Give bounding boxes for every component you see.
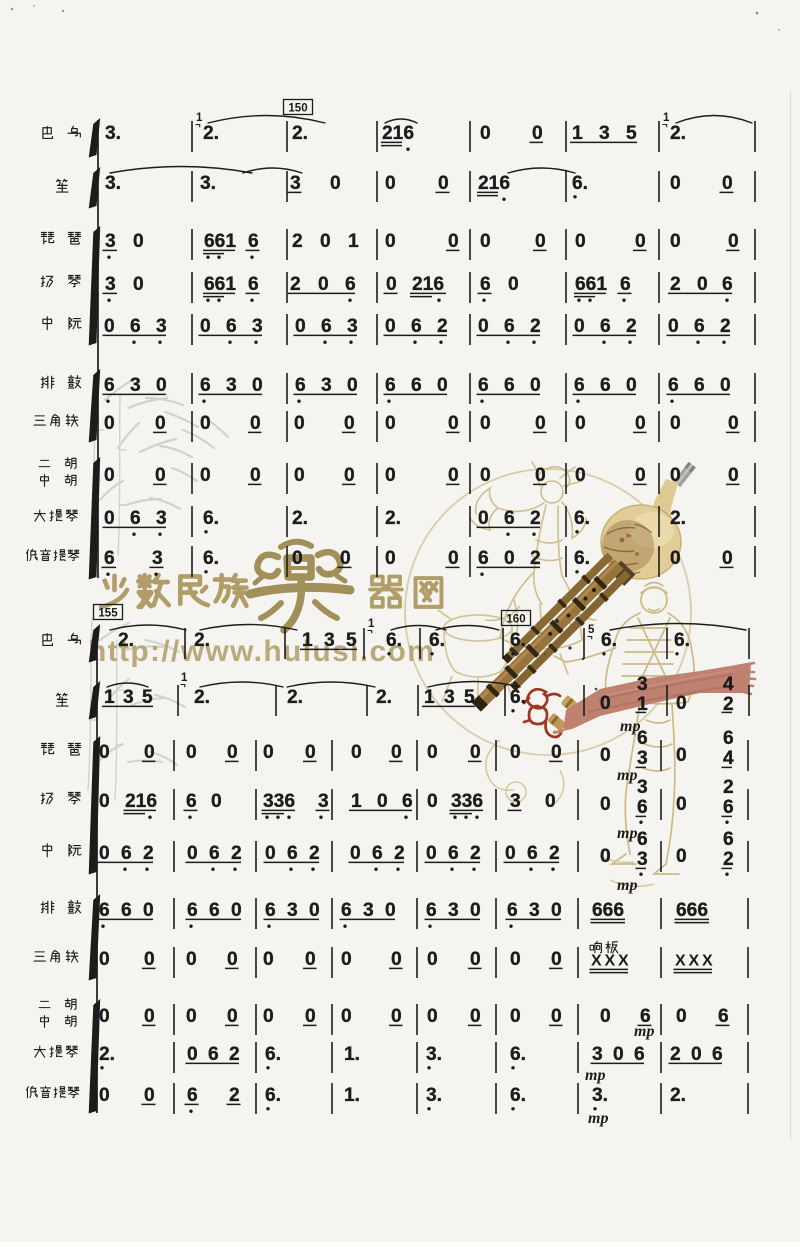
- svg-text:5: 5: [626, 123, 637, 144]
- svg-text:6.: 6.: [572, 173, 588, 194]
- svg-text:6.: 6.: [574, 548, 590, 569]
- svg-text:0: 0: [600, 693, 611, 714]
- svg-text:0: 0: [510, 949, 521, 970]
- svg-text:1.: 1.: [344, 1044, 360, 1065]
- svg-text:0: 0: [104, 316, 115, 337]
- svg-text:0: 0: [155, 465, 166, 486]
- svg-text:6.: 6.: [510, 687, 526, 708]
- svg-text:0: 0: [427, 742, 438, 763]
- svg-text:0: 0: [156, 375, 167, 396]
- svg-text:0: 0: [263, 742, 274, 763]
- svg-text:3: 3: [290, 173, 301, 194]
- svg-text:3: 3: [529, 900, 540, 921]
- svg-text:0: 0: [600, 846, 611, 867]
- svg-text:0: 0: [231, 900, 242, 921]
- svg-text:0: 0: [676, 794, 687, 815]
- svg-text:0: 0: [385, 231, 396, 252]
- svg-text:0: 0: [305, 1006, 316, 1027]
- svg-text:0: 0: [470, 949, 481, 970]
- svg-text:6: 6: [372, 843, 383, 864]
- svg-text:0: 0: [575, 413, 586, 434]
- svg-text:6.: 6.: [429, 630, 445, 651]
- svg-text:0: 0: [635, 413, 646, 434]
- svg-text:0: 0: [480, 231, 491, 252]
- svg-text:6: 6: [527, 843, 538, 864]
- svg-text:0: 0: [200, 413, 211, 434]
- svg-text:3: 3: [156, 508, 167, 529]
- svg-text:6: 6: [504, 508, 515, 529]
- svg-text:2: 2: [394, 843, 405, 864]
- svg-text:2: 2: [143, 843, 154, 864]
- svg-text:0: 0: [263, 1006, 274, 1027]
- svg-text:2.: 2.: [376, 687, 392, 708]
- svg-text:2: 2: [723, 777, 734, 798]
- svg-text:0: 0: [505, 843, 516, 864]
- svg-text:0: 0: [437, 375, 448, 396]
- svg-text:0: 0: [676, 846, 687, 867]
- svg-text:6: 6: [722, 274, 733, 295]
- svg-text:6: 6: [694, 375, 705, 396]
- svg-text:0: 0: [691, 1044, 702, 1065]
- svg-text:0: 0: [545, 791, 556, 812]
- svg-text:X X X: X X X: [591, 953, 629, 970]
- svg-text:2: 2: [437, 316, 448, 337]
- svg-text:0: 0: [600, 794, 611, 815]
- svg-text:6: 6: [620, 274, 631, 295]
- svg-text:0: 0: [448, 465, 459, 486]
- svg-text:0: 0: [670, 231, 681, 252]
- svg-text:0: 0: [722, 173, 733, 194]
- svg-text:0: 0: [330, 173, 341, 194]
- svg-text:6: 6: [723, 829, 734, 850]
- svg-text:0: 0: [104, 508, 115, 529]
- svg-text:0: 0: [227, 742, 238, 763]
- svg-text:6: 6: [200, 375, 211, 396]
- svg-text:216: 216: [382, 123, 414, 144]
- svg-text:0: 0: [294, 465, 305, 486]
- svg-text:0: 0: [385, 173, 396, 194]
- svg-text:4: 4: [723, 674, 734, 695]
- svg-text:6: 6: [121, 843, 132, 864]
- svg-text:6.: 6.: [601, 630, 617, 651]
- svg-text:6: 6: [694, 316, 705, 337]
- svg-text:0: 0: [670, 413, 681, 434]
- svg-text:6: 6: [385, 375, 396, 396]
- svg-text:3.: 3.: [426, 1044, 442, 1065]
- svg-text:0: 0: [480, 465, 491, 486]
- svg-text:3: 3: [130, 375, 141, 396]
- svg-text:1: 1: [663, 112, 670, 124]
- svg-text:0: 0: [676, 1006, 687, 1027]
- svg-text:0: 0: [535, 413, 546, 434]
- svg-text:2: 2: [549, 843, 560, 864]
- svg-text:0: 0: [722, 548, 733, 569]
- svg-text:2.: 2.: [194, 630, 210, 651]
- svg-text:2: 2: [231, 843, 242, 864]
- svg-text:6: 6: [478, 548, 489, 569]
- svg-text:0: 0: [385, 413, 396, 434]
- svg-text:6: 6: [99, 900, 110, 921]
- svg-text:0: 0: [427, 949, 438, 970]
- svg-text:6: 6: [295, 375, 306, 396]
- svg-text:336: 336: [451, 791, 483, 812]
- svg-text:6: 6: [411, 316, 422, 337]
- svg-text:2: 2: [229, 1085, 240, 1106]
- svg-text:661: 661: [204, 274, 236, 295]
- svg-text:6: 6: [478, 375, 489, 396]
- svg-text:0: 0: [720, 375, 731, 396]
- svg-text:6: 6: [637, 728, 648, 749]
- svg-text:3.: 3.: [592, 1085, 608, 1106]
- svg-text:mp: mp: [588, 1110, 608, 1127]
- svg-text:1: 1: [104, 687, 115, 708]
- svg-text:6: 6: [637, 797, 648, 818]
- svg-text:0: 0: [295, 316, 306, 337]
- svg-text:0: 0: [574, 316, 585, 337]
- svg-text:3: 3: [448, 900, 459, 921]
- svg-text:6: 6: [600, 375, 611, 396]
- svg-text:0: 0: [320, 231, 331, 252]
- svg-text:1: 1: [572, 123, 583, 144]
- svg-text:0: 0: [385, 548, 396, 569]
- svg-text:http://www.hulusi.com: http://www.hulusi.com: [88, 635, 435, 668]
- svg-text:0: 0: [635, 465, 646, 486]
- svg-text:2: 2: [292, 231, 303, 252]
- svg-text:0: 0: [144, 742, 155, 763]
- svg-text:2.: 2.: [118, 630, 134, 651]
- svg-text:6: 6: [345, 274, 356, 295]
- svg-text:0: 0: [309, 900, 320, 921]
- svg-text:0: 0: [318, 274, 329, 295]
- svg-text:0: 0: [386, 274, 397, 295]
- svg-text:3: 3: [321, 375, 332, 396]
- svg-text:155: 155: [98, 608, 118, 620]
- svg-text:6: 6: [574, 375, 585, 396]
- svg-text:6: 6: [104, 548, 115, 569]
- svg-text:mp: mp: [617, 877, 637, 894]
- svg-text:0: 0: [508, 274, 519, 295]
- svg-text:661: 661: [204, 231, 236, 252]
- svg-text:6.: 6.: [510, 630, 526, 651]
- svg-text:0: 0: [470, 742, 481, 763]
- svg-text:0: 0: [341, 1006, 352, 1027]
- svg-text:6: 6: [507, 900, 518, 921]
- svg-text:0: 0: [427, 1006, 438, 1027]
- svg-text:6: 6: [208, 1044, 219, 1065]
- svg-text:3: 3: [105, 274, 116, 295]
- svg-text:2: 2: [229, 1044, 240, 1065]
- svg-text:3: 3: [156, 316, 167, 337]
- svg-text:6: 6: [504, 375, 515, 396]
- svg-text:2: 2: [670, 1044, 681, 1065]
- svg-text:0: 0: [575, 231, 586, 252]
- svg-text:0: 0: [728, 465, 739, 486]
- svg-text:3: 3: [444, 687, 455, 708]
- svg-text:0: 0: [728, 413, 739, 434]
- svg-text:6: 6: [265, 900, 276, 921]
- svg-text:0: 0: [351, 742, 362, 763]
- svg-text:0: 0: [668, 316, 679, 337]
- svg-text:0: 0: [250, 413, 261, 434]
- svg-text:6: 6: [426, 900, 437, 921]
- svg-text:3: 3: [123, 687, 134, 708]
- svg-text:3.: 3.: [105, 123, 121, 144]
- svg-text:6: 6: [321, 316, 332, 337]
- svg-text:6: 6: [130, 316, 141, 337]
- svg-text:150: 150: [288, 103, 307, 115]
- svg-text:3.: 3.: [105, 173, 121, 194]
- svg-text:0: 0: [551, 742, 562, 763]
- svg-text:6.: 6.: [265, 1085, 281, 1106]
- svg-text:6: 6: [600, 316, 611, 337]
- svg-text:0: 0: [480, 123, 491, 144]
- svg-text:2.: 2.: [203, 123, 219, 144]
- svg-text:3: 3: [363, 900, 374, 921]
- svg-text:6: 6: [712, 1044, 723, 1065]
- svg-text:0: 0: [347, 375, 358, 396]
- svg-text:0: 0: [426, 843, 437, 864]
- svg-text:0: 0: [99, 843, 110, 864]
- svg-text:6: 6: [209, 900, 220, 921]
- svg-text:2.: 2.: [670, 508, 686, 529]
- svg-text:0: 0: [391, 949, 402, 970]
- svg-text:3: 3: [637, 777, 648, 798]
- svg-text:1: 1: [348, 231, 359, 252]
- svg-text:0: 0: [613, 1044, 624, 1065]
- svg-text:0: 0: [133, 231, 144, 252]
- svg-text:2.: 2.: [194, 687, 210, 708]
- svg-text:216: 216: [478, 173, 510, 194]
- svg-text:6: 6: [186, 791, 197, 812]
- svg-text:mp: mp: [617, 767, 637, 784]
- svg-text:0: 0: [200, 316, 211, 337]
- svg-text:0: 0: [340, 548, 351, 569]
- svg-text:0: 0: [292, 548, 303, 569]
- svg-text:0: 0: [448, 231, 459, 252]
- svg-text:0: 0: [448, 413, 459, 434]
- svg-text:2.: 2.: [292, 123, 308, 144]
- svg-text:2: 2: [470, 843, 481, 864]
- svg-text:6.: 6.: [203, 508, 219, 529]
- svg-text:6.: 6.: [203, 548, 219, 569]
- svg-text:0: 0: [635, 231, 646, 252]
- svg-text:5: 5: [346, 630, 357, 651]
- svg-text:3: 3: [226, 375, 237, 396]
- svg-text:3: 3: [637, 748, 648, 769]
- svg-text:6: 6: [226, 316, 237, 337]
- svg-text:3: 3: [318, 791, 329, 812]
- svg-text:0: 0: [99, 949, 110, 970]
- svg-text:6.: 6.: [674, 630, 690, 651]
- svg-text:0: 0: [385, 900, 396, 921]
- svg-text:6: 6: [104, 375, 115, 396]
- svg-text:0: 0: [697, 274, 708, 295]
- svg-text:0: 0: [143, 900, 154, 921]
- svg-text:0: 0: [377, 791, 388, 812]
- svg-text:6: 6: [402, 791, 413, 812]
- svg-text:0: 0: [670, 465, 681, 486]
- svg-text:0: 0: [478, 316, 489, 337]
- svg-text:0: 0: [438, 173, 449, 194]
- svg-text:mp: mp: [617, 825, 637, 842]
- svg-text:6.: 6.: [265, 1044, 281, 1065]
- svg-text:6: 6: [341, 900, 352, 921]
- svg-text:0: 0: [504, 548, 515, 569]
- svg-text:0: 0: [575, 465, 586, 486]
- svg-text:6.: 6.: [510, 1044, 526, 1065]
- svg-text:0: 0: [104, 465, 115, 486]
- svg-text:2: 2: [720, 316, 731, 337]
- svg-text:0: 0: [535, 465, 546, 486]
- svg-text:0: 0: [600, 1006, 611, 1027]
- svg-text:2.: 2.: [99, 1044, 115, 1065]
- svg-text:0: 0: [391, 742, 402, 763]
- svg-text:0: 0: [480, 413, 491, 434]
- svg-text:0: 0: [99, 1006, 110, 1027]
- svg-text:2: 2: [530, 548, 541, 569]
- svg-text:0: 0: [344, 465, 355, 486]
- svg-text:0: 0: [530, 375, 541, 396]
- svg-text:6.: 6.: [386, 630, 402, 651]
- svg-text:0: 0: [211, 791, 222, 812]
- svg-text:0: 0: [350, 843, 361, 864]
- svg-text:6: 6: [248, 274, 259, 295]
- svg-text:0: 0: [551, 1006, 562, 1027]
- svg-text:0: 0: [227, 949, 238, 970]
- svg-text:0: 0: [676, 693, 687, 714]
- svg-text:6: 6: [634, 1044, 645, 1065]
- svg-text:2.: 2.: [385, 508, 401, 529]
- svg-text:0: 0: [305, 949, 316, 970]
- svg-text:1: 1: [196, 112, 203, 124]
- svg-text:6: 6: [668, 375, 679, 396]
- svg-text:0: 0: [385, 316, 396, 337]
- svg-text:661: 661: [575, 274, 607, 295]
- svg-text:0: 0: [200, 465, 211, 486]
- svg-text:0: 0: [470, 1006, 481, 1027]
- svg-text:0: 0: [532, 123, 543, 144]
- svg-text:2.: 2.: [287, 687, 303, 708]
- svg-text:1: 1: [424, 687, 435, 708]
- svg-text:2: 2: [309, 843, 320, 864]
- svg-text:0: 0: [144, 1006, 155, 1027]
- svg-text:0: 0: [144, 1085, 155, 1106]
- svg-text:3: 3: [637, 849, 648, 870]
- svg-text:6: 6: [411, 375, 422, 396]
- svg-text:0: 0: [670, 548, 681, 569]
- svg-text:5: 5: [588, 624, 595, 636]
- svg-text:0: 0: [626, 375, 637, 396]
- svg-text:0: 0: [99, 791, 110, 812]
- svg-text:5: 5: [142, 687, 153, 708]
- svg-text:0: 0: [252, 375, 263, 396]
- svg-text:0: 0: [728, 231, 739, 252]
- svg-text:3: 3: [287, 900, 298, 921]
- svg-text:0: 0: [263, 949, 274, 970]
- svg-text:2.: 2.: [292, 508, 308, 529]
- svg-text:1: 1: [368, 618, 375, 630]
- svg-text:0: 0: [344, 413, 355, 434]
- svg-text:2.: 2.: [670, 1085, 686, 1106]
- svg-text:2: 2: [530, 316, 541, 337]
- svg-text:216: 216: [125, 791, 157, 812]
- svg-text:2: 2: [670, 274, 681, 295]
- svg-text:3: 3: [152, 548, 163, 569]
- svg-text:6: 6: [448, 843, 459, 864]
- svg-text:3.: 3.: [200, 173, 216, 194]
- svg-text:5: 5: [464, 687, 475, 708]
- svg-text:1: 1: [181, 672, 188, 684]
- svg-text:0: 0: [186, 1006, 197, 1027]
- svg-text:216: 216: [412, 274, 444, 295]
- svg-text:mp: mp: [585, 1067, 605, 1084]
- svg-text:6.: 6.: [510, 1085, 526, 1106]
- svg-text:6: 6: [723, 797, 734, 818]
- svg-text:0: 0: [448, 548, 459, 569]
- svg-text:6: 6: [723, 728, 734, 749]
- svg-text:0: 0: [294, 413, 305, 434]
- svg-text:2: 2: [723, 849, 734, 870]
- svg-text:0: 0: [99, 1085, 110, 1106]
- svg-text:0: 0: [535, 231, 546, 252]
- svg-text:0: 0: [385, 465, 396, 486]
- svg-text:2: 2: [626, 316, 637, 337]
- svg-text:336: 336: [263, 791, 295, 812]
- svg-text:3: 3: [510, 791, 521, 812]
- svg-text:0: 0: [133, 274, 144, 295]
- svg-text:0: 0: [670, 173, 681, 194]
- svg-text:X X X: X X X: [675, 953, 713, 970]
- svg-text:6.: 6.: [574, 508, 590, 529]
- svg-text:0: 0: [305, 742, 316, 763]
- svg-text:0: 0: [227, 1006, 238, 1027]
- svg-text:0: 0: [478, 508, 489, 529]
- svg-text:0: 0: [341, 949, 352, 970]
- svg-text:666: 666: [592, 900, 624, 921]
- svg-text:0: 0: [600, 745, 611, 766]
- svg-text:666: 666: [676, 900, 708, 921]
- svg-text:6: 6: [248, 231, 259, 252]
- svg-text:0: 0: [99, 742, 110, 763]
- svg-text:160: 160: [506, 614, 525, 626]
- svg-text:0: 0: [144, 949, 155, 970]
- svg-text:0: 0: [551, 949, 562, 970]
- svg-text:6: 6: [121, 900, 132, 921]
- svg-text:0: 0: [510, 742, 521, 763]
- svg-text:4: 4: [723, 748, 734, 769]
- svg-text:6: 6: [130, 508, 141, 529]
- svg-text:0: 0: [470, 900, 481, 921]
- svg-text:6: 6: [187, 900, 198, 921]
- svg-text:3: 3: [592, 1044, 603, 1065]
- svg-text:3: 3: [252, 316, 263, 337]
- svg-text:0: 0: [391, 1006, 402, 1027]
- svg-text:mp: mp: [634, 1023, 654, 1040]
- svg-text:0: 0: [186, 742, 197, 763]
- svg-text:0: 0: [155, 413, 166, 434]
- svg-text:2: 2: [290, 274, 301, 295]
- svg-text:0: 0: [187, 843, 198, 864]
- svg-text:6: 6: [637, 829, 648, 850]
- svg-text:0: 0: [551, 900, 562, 921]
- svg-text:0: 0: [250, 465, 261, 486]
- svg-text:3: 3: [324, 630, 335, 651]
- svg-text:0: 0: [427, 791, 438, 812]
- svg-text:3: 3: [637, 674, 648, 695]
- svg-text:1: 1: [351, 791, 362, 812]
- svg-text:3: 3: [347, 316, 358, 337]
- svg-text:0: 0: [510, 1006, 521, 1027]
